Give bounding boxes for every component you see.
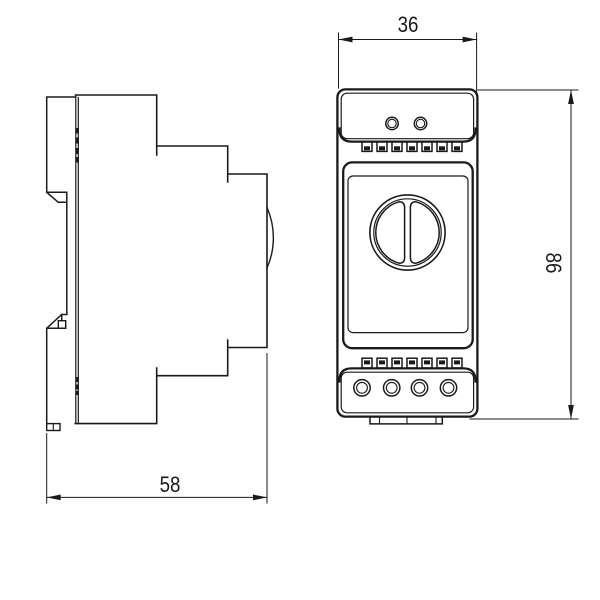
technical-drawing-canvas: 36 86 58 [0, 0, 600, 600]
side-knob-bulge-arc [267, 208, 273, 269]
top-screw-2-inner [416, 119, 424, 127]
drawing-linework [0, 0, 600, 600]
knob-right-half [410, 202, 439, 263]
dimension-label-front-width: 36 [383, 12, 434, 38]
dim-58-arrow-left [47, 495, 61, 501]
bottom-screw-1-inner [357, 382, 368, 393]
dimension-label-side-depth: 58 [145, 472, 196, 498]
dim-86-arrow-bottom [568, 405, 574, 419]
dim-58-arrow-right [253, 495, 267, 501]
lower-vent-slots [362, 358, 462, 368]
knob-outer-ring [370, 195, 445, 270]
side-back-plate-outline [47, 97, 76, 424]
dim-36-arrow-right [463, 37, 477, 43]
side-body-profile [75, 95, 267, 424]
dimension-36 [339, 33, 477, 92]
dim-86-arrow-top [568, 90, 574, 104]
knob-inner-ring [374, 199, 441, 266]
din-clip-tooth [58, 321, 65, 329]
bottom-screw-4-inner [443, 382, 454, 393]
dim-36-extension-lines [339, 33, 477, 92]
front-view [337, 89, 477, 424]
upper-vent-slots [362, 142, 462, 152]
face-plate [348, 176, 468, 333]
bottom-section-inner-line [341, 372, 473, 413]
knob-left-half [376, 202, 405, 263]
face-frame [343, 162, 473, 348]
side-back-plate-double-line [76, 96, 79, 424]
top-terminal-screws [386, 117, 427, 129]
bottom-terminal-screws [354, 380, 457, 396]
top-screw-1-inner [388, 119, 396, 127]
bottom-screw-2-inner [386, 382, 397, 393]
terminal-cover-bottom-edge [339, 129, 475, 142]
dim-36-arrow-left [339, 37, 353, 43]
rotary-knob [370, 195, 445, 270]
bottom-screw-3-inner [414, 382, 425, 393]
dimension-label-overall-height: 86 [540, 238, 566, 289]
terminal-cover-top-inner-line [341, 93, 473, 139]
side-view [47, 95, 274, 431]
